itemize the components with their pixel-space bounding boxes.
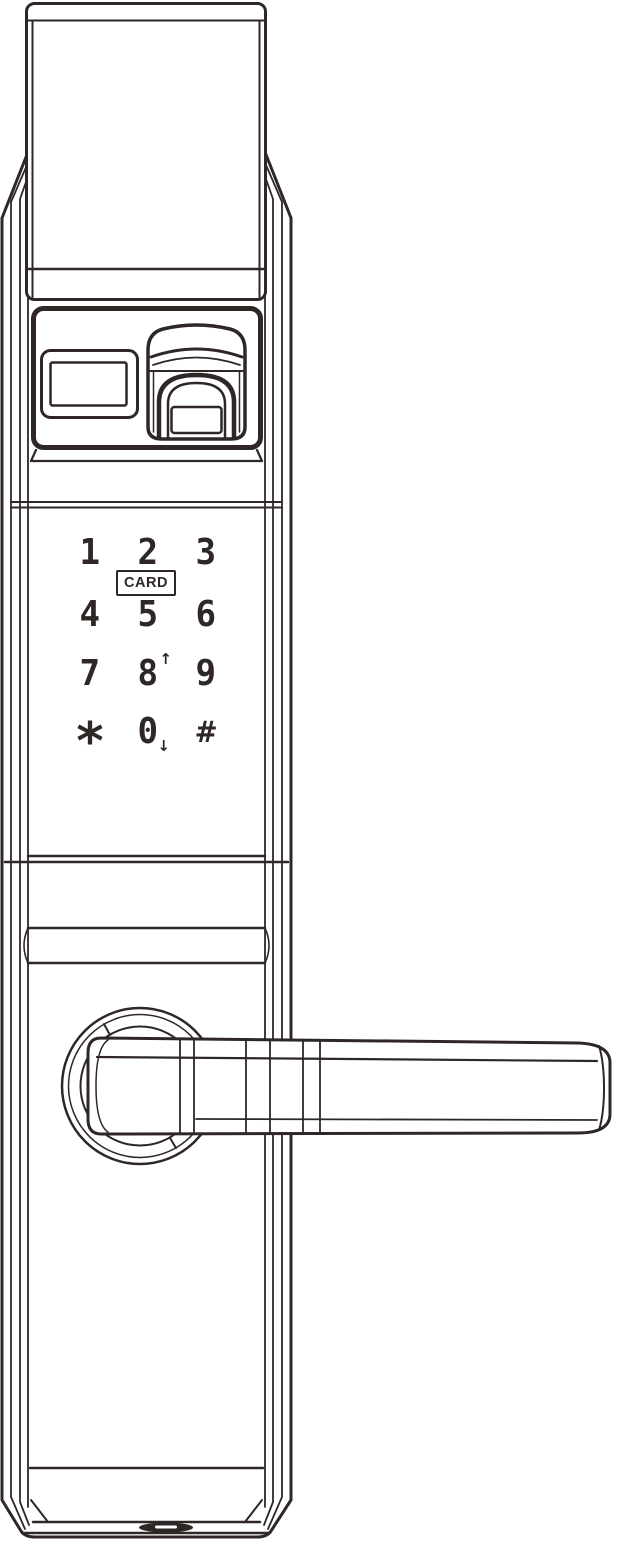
- keypad-key-1: 1: [61, 522, 119, 584]
- display-screen: [42, 351, 138, 418]
- bottom-port-detail: [139, 1523, 193, 1533]
- keypad-key-star: *: [61, 702, 119, 762]
- hash-icon: #: [194, 718, 217, 747]
- keypad-key-7: 7: [61, 646, 119, 702]
- up-arrow-icon: ↑: [159, 652, 172, 667]
- keypad-key-0-down: 0↓: [119, 702, 177, 762]
- keypad-key-9: 9: [177, 646, 235, 702]
- keypad-key-6: 6: [177, 584, 235, 646]
- keypad-key-3: 3: [177, 522, 235, 584]
- down-arrow-icon: ↓: [157, 739, 170, 754]
- keypad-key-4: 4: [61, 584, 119, 646]
- top-cap-block: [27, 4, 266, 300]
- card-reader-badge: CARD: [116, 570, 176, 596]
- keypad: 1 2 3 4 5 6 7 8↑ 9 * 0↓ #: [61, 522, 235, 762]
- asterisk-icon: *: [76, 716, 103, 768]
- door-lock-technical-drawing: 1 2 3 4 5 6 7 8↑ 9 * 0↓ # CARD: [0, 0, 617, 1541]
- keypad-key-8-up: 8↑: [119, 646, 177, 702]
- fingerprint-reader-icon: [148, 325, 245, 439]
- door-handle-lever: [88, 1038, 610, 1134]
- keypad-key-hash: #: [177, 702, 235, 762]
